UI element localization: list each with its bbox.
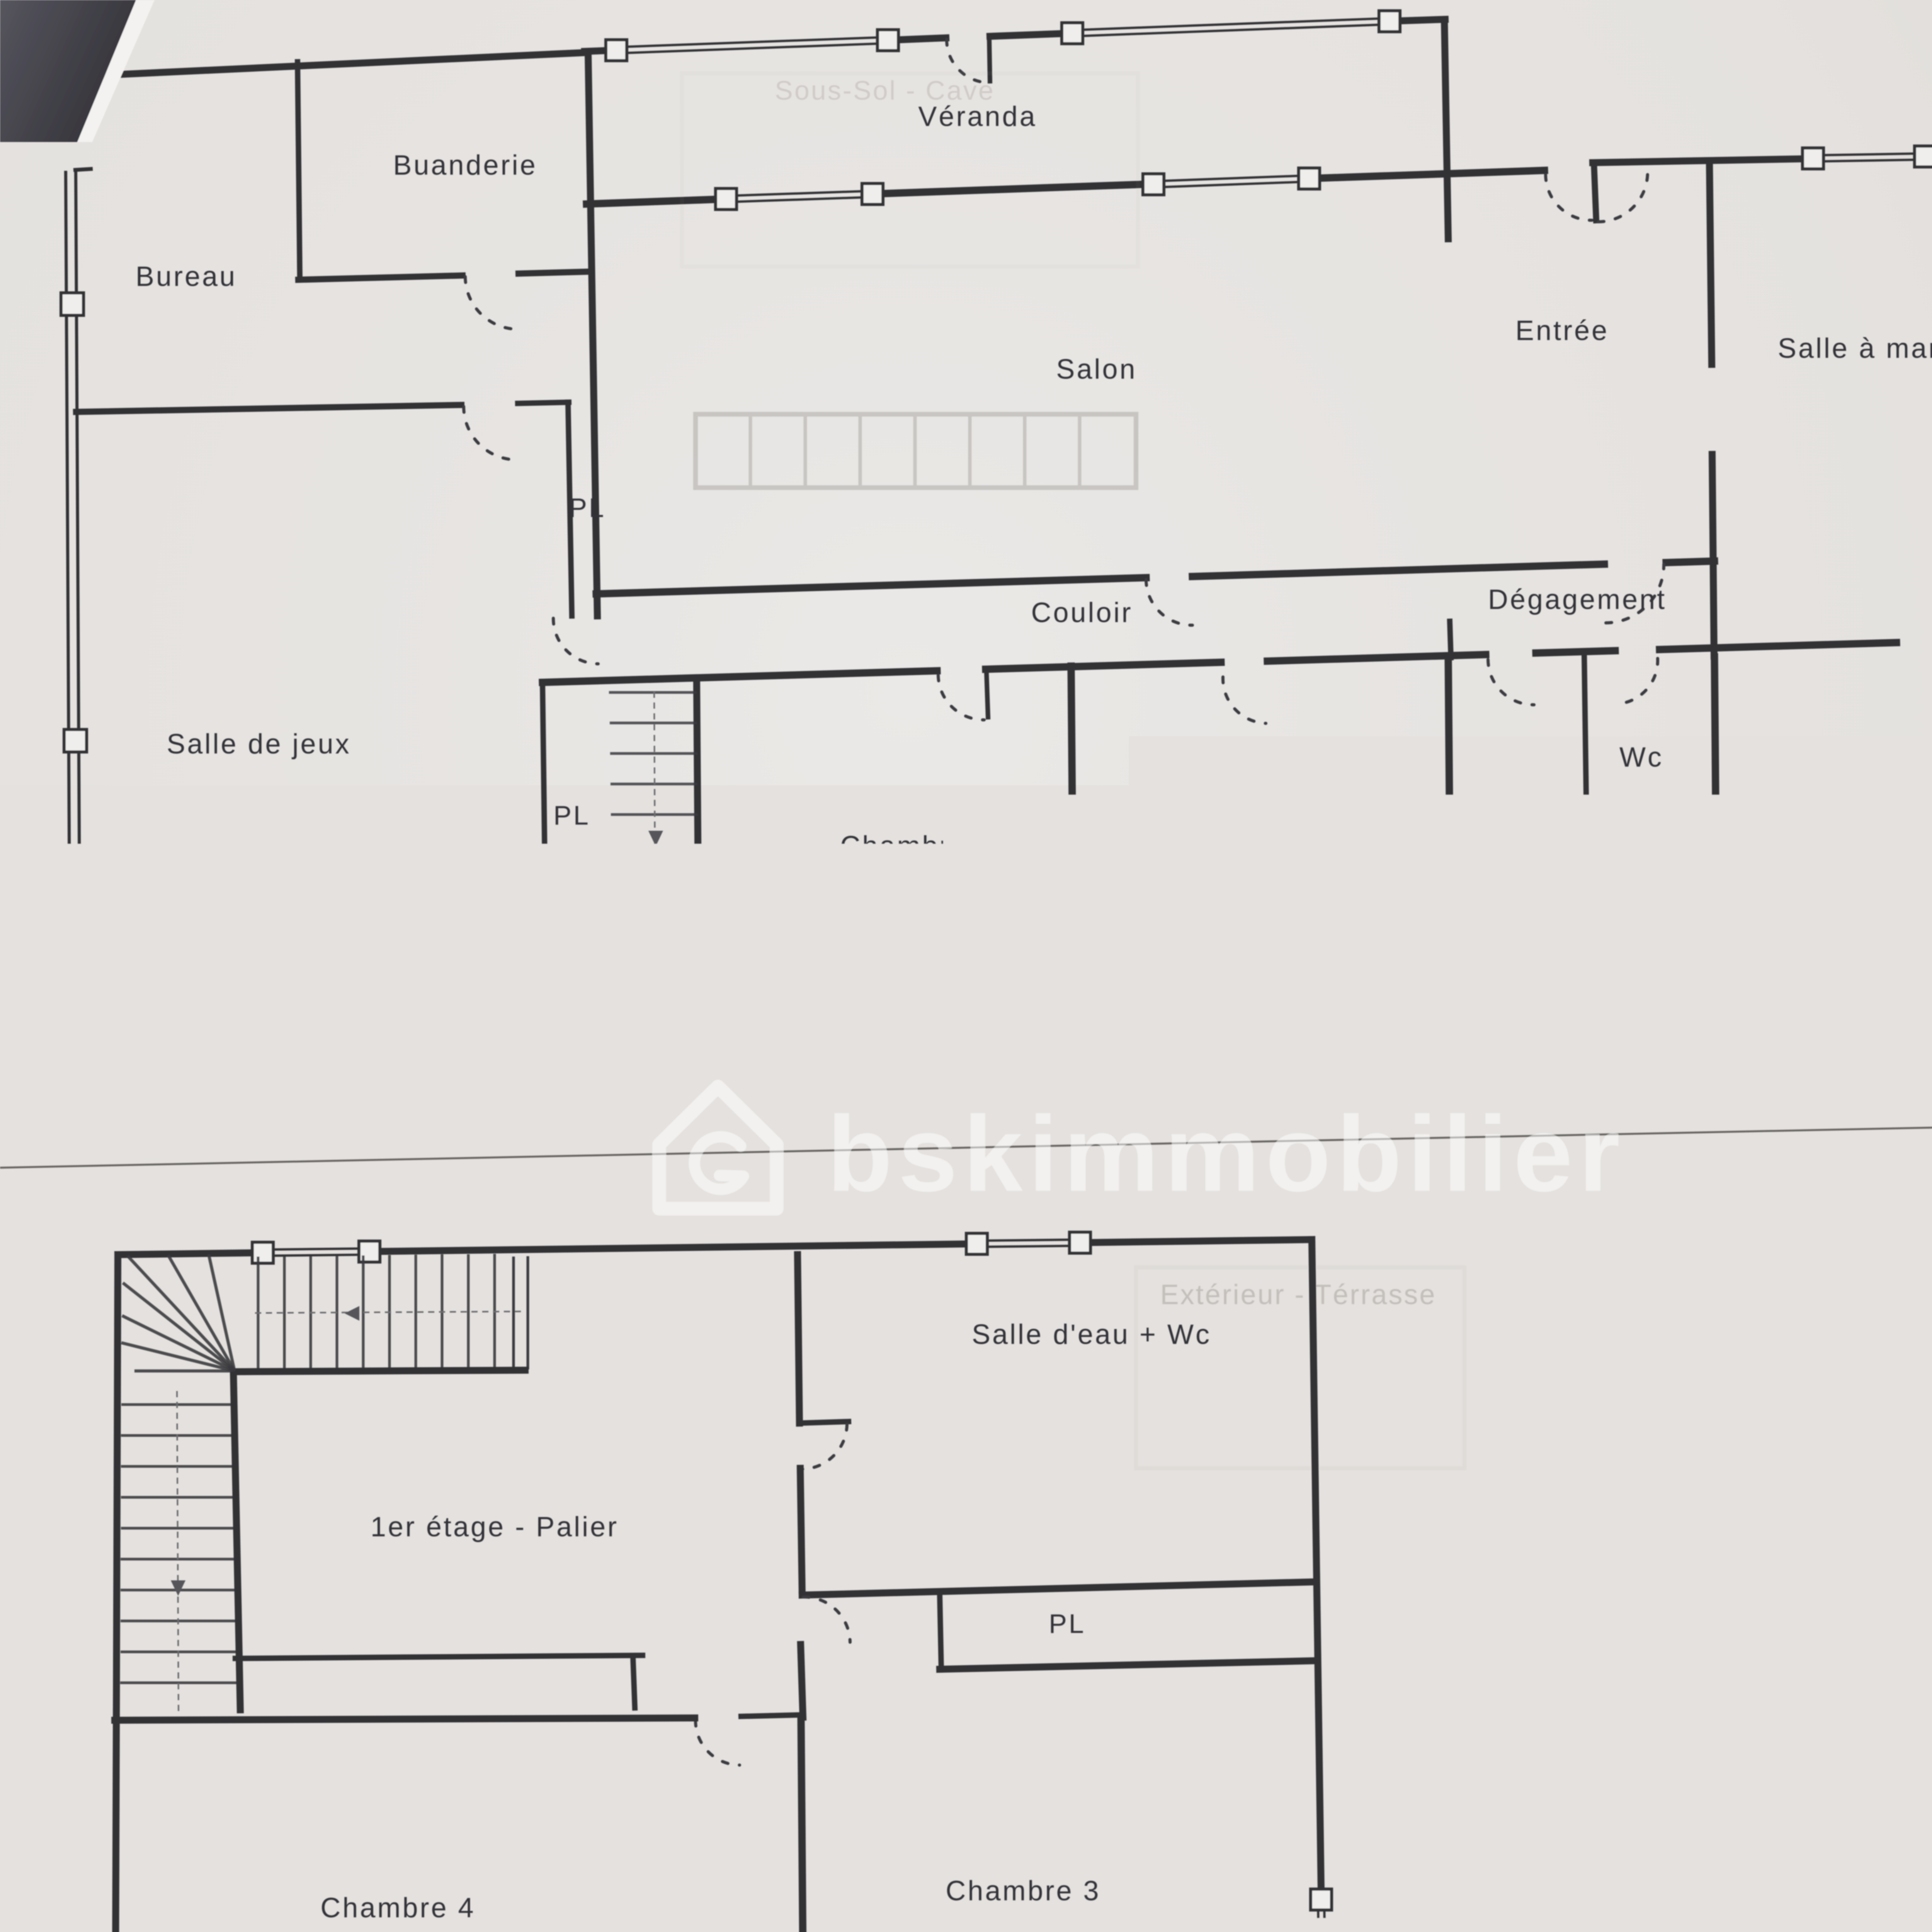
svg-text:PL: PL [553, 800, 590, 830]
svg-text:Salle de jeux: Salle de jeux [167, 729, 351, 760]
svg-text:Dégagement: Dégagement [1488, 584, 1667, 615]
svg-text:Entrée: Entrée [1515, 315, 1609, 346]
svg-text:Couloir: Couloir [1031, 597, 1133, 628]
svg-text:Chambre 2: Chambre 2 [840, 831, 995, 862]
svg-text:Chambre 3: Chambre 3 [946, 1876, 1100, 1906]
svg-text:PL: PL [1049, 1609, 1086, 1639]
svg-text:Véranda: Véranda [918, 101, 1037, 132]
svg-text:Salle d'eau + Wc: Salle d'eau + Wc [972, 1319, 1211, 1350]
svg-text:Cuisine: Cuisine [1821, 794, 1927, 825]
svg-text:Sous-Sol - Cave: Sous-Sol - Cave [775, 75, 995, 105]
svg-text:Buanderie: Buanderie [393, 150, 537, 181]
svg-text:Extérieur - Térrasse: Extérieur - Térrasse [1160, 1279, 1437, 1310]
svg-text:croquis rdc: croquis rdc [1762, 969, 1932, 1011]
svg-text:Salle à manger: Salle à manger [1778, 333, 1932, 364]
svg-text:Chambre 1: Chambre 1 [1205, 811, 1360, 842]
svg-text:bskimmobilier: bskimmobilier [827, 1094, 1626, 1214]
svg-text:Wc: Wc [1619, 742, 1663, 773]
svg-text:PL: PL [569, 493, 606, 523]
svg-text:Chambre 4: Chambre 4 [320, 1893, 475, 1923]
svg-text:Salon: Salon [1056, 354, 1137, 385]
svg-text:Salle de bain: Salle de bain [1487, 912, 1673, 943]
svg-text:Bureau: Bureau [136, 261, 237, 292]
svg-text:1er étage - Palier: 1er étage - Palier [371, 1512, 619, 1543]
